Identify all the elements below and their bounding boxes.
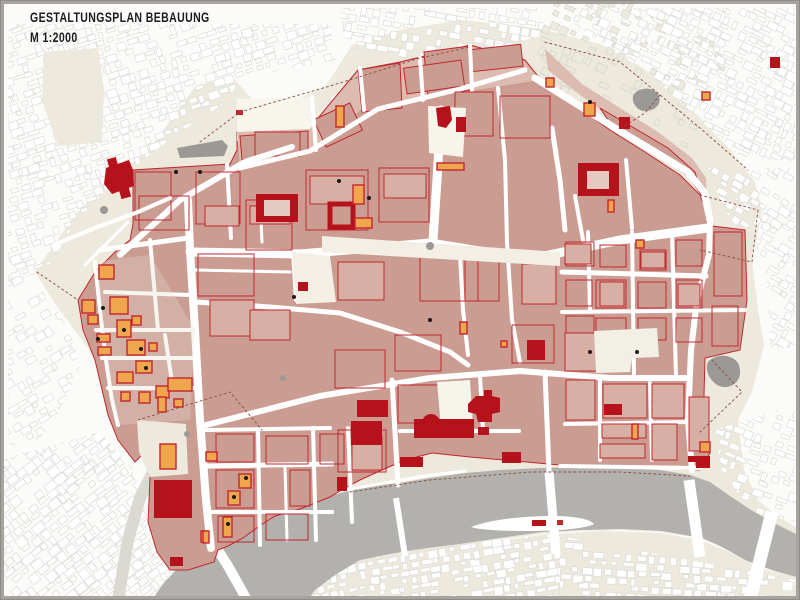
svg-text:M 1:2000: M 1:2000	[30, 30, 78, 46]
svg-text:GESTALTUNGSPLAN BEBAUUNG: GESTALTUNGSPLAN BEBAUUNG	[30, 10, 210, 26]
